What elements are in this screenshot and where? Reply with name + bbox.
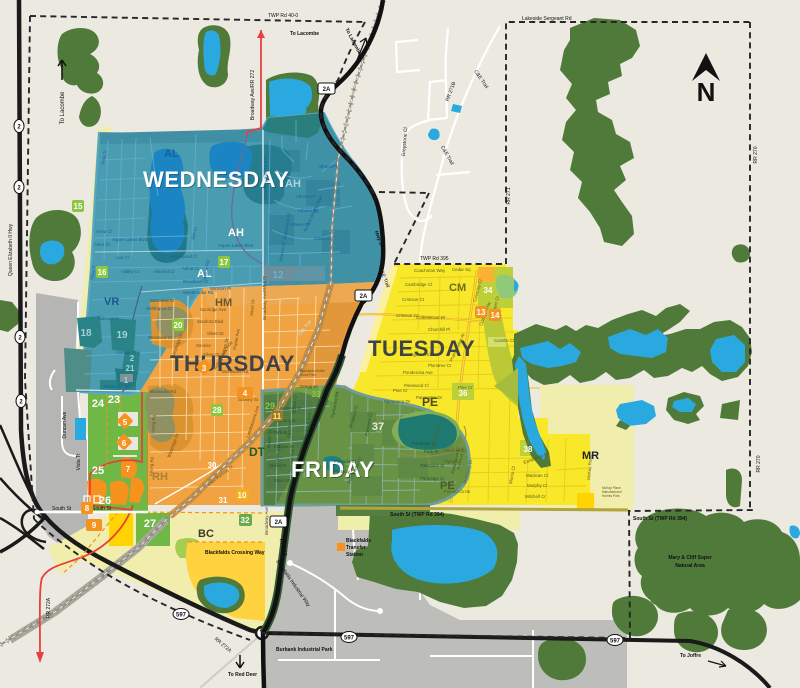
svg-text:South St: South St	[52, 506, 72, 512]
svg-text:Winston Pl: Winston Pl	[210, 286, 231, 291]
svg-text:Womacks Rd: Womacks Rd	[222, 369, 249, 374]
svg-text:RR 272A: RR 272A	[46, 597, 52, 618]
svg-text:Westview Cr: Westview Cr	[148, 335, 173, 340]
svg-text:31: 31	[219, 496, 228, 505]
svg-text:37: 37	[372, 421, 384, 433]
svg-text:Cottonwood Dr: Cottonwood Dr	[416, 315, 446, 320]
svg-text:Maclean Cl: Maclean Cl	[526, 473, 548, 478]
svg-text:Aztec Cr: Aztec Cr	[314, 236, 331, 241]
svg-text:To Red Deer: To Red Deer	[228, 672, 257, 678]
svg-text:TWP Rd 40-0: TWP Rd 40-0	[268, 13, 298, 19]
svg-text:2A: 2A	[275, 520, 283, 526]
svg-text:Wellington Cl: Wellington Cl	[146, 306, 172, 311]
svg-text:597: 597	[176, 613, 187, 619]
svg-text:2: 2	[130, 354, 135, 363]
svg-text:Station: Station	[346, 552, 363, 558]
svg-text:7: 7	[126, 465, 131, 474]
svg-text:5: 5	[123, 418, 128, 427]
svg-text:30: 30	[208, 461, 217, 470]
svg-text:Cedar Sq: Cedar Sq	[452, 267, 471, 272]
svg-text:20: 20	[174, 321, 183, 330]
svg-text:Ponderosa Ave: Ponderosa Ave	[403, 370, 433, 375]
svg-text:8: 8	[85, 504, 90, 513]
svg-text:Vintage Cl: Vintage Cl	[116, 350, 136, 355]
svg-text:Transfer: Transfer	[346, 545, 366, 551]
svg-text:RH: RH	[152, 471, 168, 483]
svg-text:Pinnacle Cl: Pinnacle Cl	[334, 459, 356, 464]
svg-text:19: 19	[116, 330, 128, 341]
svg-text:21: 21	[126, 364, 135, 373]
svg-text:6: 6	[122, 439, 127, 448]
svg-text:24: 24	[92, 398, 105, 410]
svg-text:Vista Tr: Vista Tr	[76, 453, 82, 470]
svg-text:Coachman Way: Coachman Way	[414, 268, 446, 273]
svg-text:Ava Cr: Ava Cr	[116, 255, 130, 260]
svg-text:Pinewood Cl: Pinewood Cl	[404, 383, 429, 388]
svg-text:To Joffre: To Joffre	[680, 653, 701, 659]
svg-text:Almond Cr: Almond Cr	[154, 269, 175, 274]
svg-text:Burbank Industrial Park: Burbank Industrial Park	[276, 647, 333, 653]
svg-text:26: 26	[99, 495, 111, 507]
svg-text:Aspen Lakes Blvd: Aspen Lakes Blvd	[112, 237, 148, 242]
svg-text:Park: Park	[431, 430, 443, 436]
svg-text:Womacks Rd: Womacks Rd	[104, 384, 131, 389]
svg-text:Valmont St: Valmont St	[98, 316, 120, 321]
svg-text:Broadway Ave/RR 272: Broadway Ave/RR 272	[262, 275, 267, 320]
svg-text:Lakeside Sergeant Rd: Lakeside Sergeant Rd	[522, 16, 572, 22]
svg-text:Palisades St: Palisades St	[420, 463, 445, 468]
svg-text:Stanford Blvd: Stanford Blvd	[197, 319, 224, 324]
svg-text:Aspen Lakes Blvd: Aspen Lakes Blvd	[218, 243, 254, 248]
svg-text:Mary & Cliff Soper: Mary & Cliff Soper	[668, 555, 711, 561]
svg-text:9: 9	[92, 521, 97, 530]
svg-text:BC: BC	[198, 528, 214, 540]
svg-text:Womacks Rd: Womacks Rd	[150, 389, 177, 394]
svg-text:Pondside Cr: Pondside Cr	[412, 441, 437, 446]
svg-text:Silver Dr: Silver Dr	[207, 331, 224, 336]
svg-text:Home Park: Home Park	[300, 373, 316, 377]
svg-text:Churchill Pl: Churchill Pl	[428, 327, 450, 332]
svg-text:Blackfalds: Blackfalds	[346, 538, 371, 544]
svg-text:Westview Cr: Westview Cr	[150, 298, 175, 303]
svg-text:Panorama Dr: Panorama Dr	[416, 395, 443, 400]
svg-text:Natural Area: Natural Area	[675, 563, 705, 569]
svg-text:N: N	[697, 77, 716, 107]
svg-text:15: 15	[74, 202, 83, 211]
svg-text:Sunridge Ave: Sunridge Ave	[200, 307, 227, 312]
svg-text:36: 36	[459, 389, 468, 398]
svg-text:10: 10	[238, 491, 247, 500]
svg-text:13: 13	[477, 308, 486, 317]
svg-text:Waghorn St: Waghorn St	[278, 406, 302, 411]
svg-text:RR 270: RR 270	[753, 146, 759, 163]
svg-text:AL: AL	[164, 148, 179, 160]
svg-text:Anna Cl: Anna Cl	[96, 229, 112, 234]
svg-text:23: 23	[108, 394, 120, 406]
svg-text:597: 597	[610, 639, 621, 645]
svg-text:Panorama Dr: Panorama Dr	[384, 399, 411, 404]
svg-text:27: 27	[144, 518, 156, 530]
svg-text:33: 33	[312, 390, 321, 399]
svg-text:Arrowwood Cl: Arrowwood Cl	[170, 254, 197, 259]
svg-text:38: 38	[524, 445, 533, 454]
svg-text:RR 271: RR 271	[506, 187, 512, 204]
svg-text:12: 12	[272, 270, 284, 281]
svg-text:To Lacombe: To Lacombe	[290, 31, 319, 37]
svg-text:Valley Cr: Valley Cr	[122, 269, 140, 274]
svg-text:Shull St: Shull St	[274, 478, 290, 483]
svg-text:VR: VR	[104, 296, 119, 308]
svg-text:RR 270: RR 270	[756, 455, 762, 472]
svg-text:4: 4	[243, 389, 248, 398]
svg-text:Silver Dr: Silver Dr	[203, 352, 220, 357]
svg-text:Broadway Ave/RR 272: Broadway Ave/RR 272	[263, 155, 268, 200]
svg-text:South St (TWP Rd 394): South St (TWP Rd 394)	[633, 516, 687, 522]
svg-text:2A: 2A	[360, 294, 368, 300]
svg-text:AH: AH	[228, 227, 244, 239]
svg-text:Plumtree Cr: Plumtree Cr	[428, 363, 452, 368]
svg-text:16: 16	[98, 268, 107, 277]
svg-text:Pine Cr: Pine Cr	[393, 388, 408, 393]
svg-text:Duncan Ave: Duncan Ave	[62, 411, 68, 438]
svg-text:FRIDAY: FRIDAY	[291, 457, 374, 482]
svg-text:Blackfalds Crossing Way: Blackfalds Crossing Way	[205, 550, 265, 556]
svg-text:Gregg St: Gregg St	[300, 384, 318, 389]
svg-text:25: 25	[92, 465, 104, 477]
svg-text:18: 18	[80, 328, 92, 339]
svg-text:Adina Cl: Adina Cl	[182, 266, 199, 271]
svg-text:Queen Elizabeth II Hwy: Queen Elizabeth II Hwy	[8, 223, 14, 276]
svg-text:Homes Park: Homes Park	[602, 494, 620, 498]
svg-text:28: 28	[213, 406, 222, 415]
svg-text:DT: DT	[249, 445, 266, 459]
svg-text:11: 11	[273, 412, 282, 421]
svg-text:AH: AH	[285, 178, 301, 190]
svg-text:Sunrise: Sunrise	[196, 343, 211, 348]
svg-text:Athena Pl: Athena Pl	[318, 164, 337, 169]
svg-text:597: 597	[344, 636, 355, 642]
svg-text:Broadway Ave/RR 272: Broadway Ave/RR 272	[250, 70, 256, 120]
svg-text:17: 17	[220, 258, 229, 267]
svg-text:Cyprus Rd: Cyprus Rd	[410, 352, 431, 357]
svg-text:29: 29	[265, 401, 275, 411]
svg-text:Athens Pl: Athens Pl	[296, 194, 315, 199]
svg-text:Centennial: Centennial	[424, 423, 450, 429]
svg-text:2A: 2A	[323, 87, 331, 93]
svg-text:CM: CM	[449, 282, 466, 294]
svg-text:TWP Rd 395: TWP Rd 395	[420, 256, 449, 262]
svg-text:Crimson Ct: Crimson Ct	[402, 297, 425, 302]
svg-text:Parkridge Cr: Parkridge Cr	[420, 476, 445, 481]
svg-text:South St (TWP Rd 394): South St (TWP Rd 394)	[390, 512, 444, 518]
svg-text:Murphy Cl: Murphy Cl	[527, 483, 547, 488]
svg-text:Cambridge Cl: Cambridge Cl	[405, 282, 432, 287]
svg-text:To Lacombe: To Lacombe	[60, 91, 66, 124]
svg-text:34: 34	[484, 286, 493, 295]
svg-text:Arlen Cl: Arlen Cl	[94, 242, 110, 247]
svg-text:Palmer Circle: Palmer Circle	[444, 489, 471, 494]
svg-text:Mitchell Cr: Mitchell Cr	[525, 494, 546, 499]
svg-text:Park St: Park St	[424, 449, 439, 454]
svg-text:Camille Ct: Camille Ct	[494, 338, 515, 343]
svg-text:32: 32	[241, 516, 250, 525]
svg-text:3: 3	[202, 364, 207, 373]
svg-text:Broadway Ave: Broadway Ave	[264, 506, 269, 535]
svg-text:14: 14	[491, 311, 500, 320]
